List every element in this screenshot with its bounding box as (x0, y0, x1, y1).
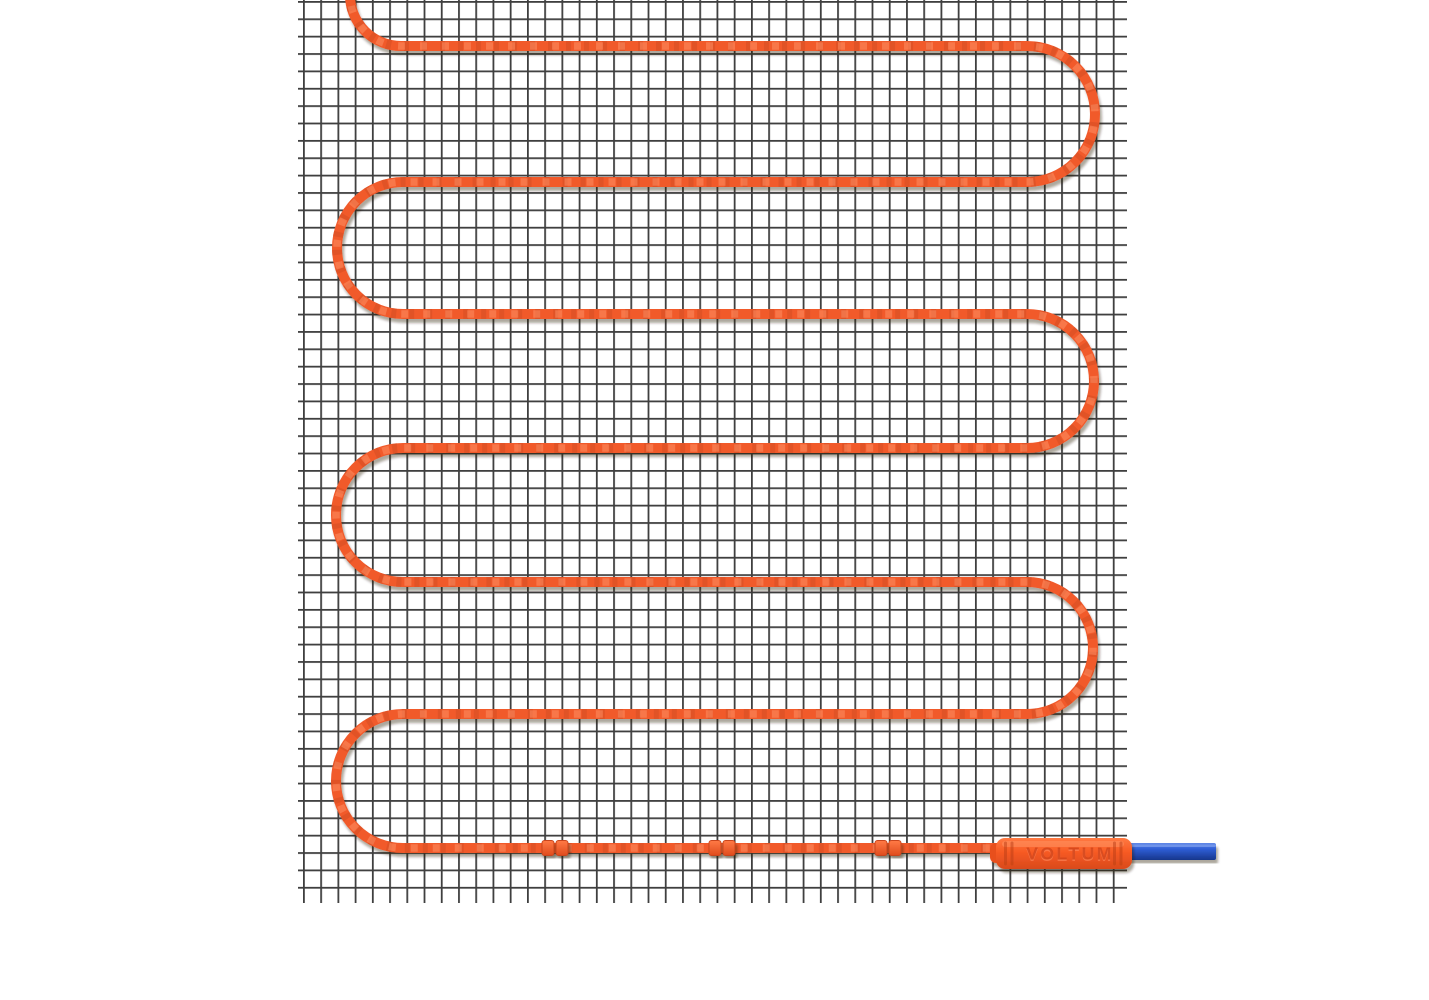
cold-lead-highlight (1120, 845, 1216, 848)
product-image: VOLTUM VOLTUM (0, 0, 1429, 1000)
brand-label: VOLTUM (1026, 844, 1114, 864)
heating-mat-scene: VOLTUM VOLTUM (0, 0, 1429, 1000)
connector-ridge (1011, 842, 1014, 866)
cold-lead-cable (1120, 843, 1216, 860)
connector-ridge (1004, 842, 1007, 866)
connector-ridge (1120, 842, 1123, 866)
power-connector: VOLTUM VOLTUM (990, 838, 1132, 869)
